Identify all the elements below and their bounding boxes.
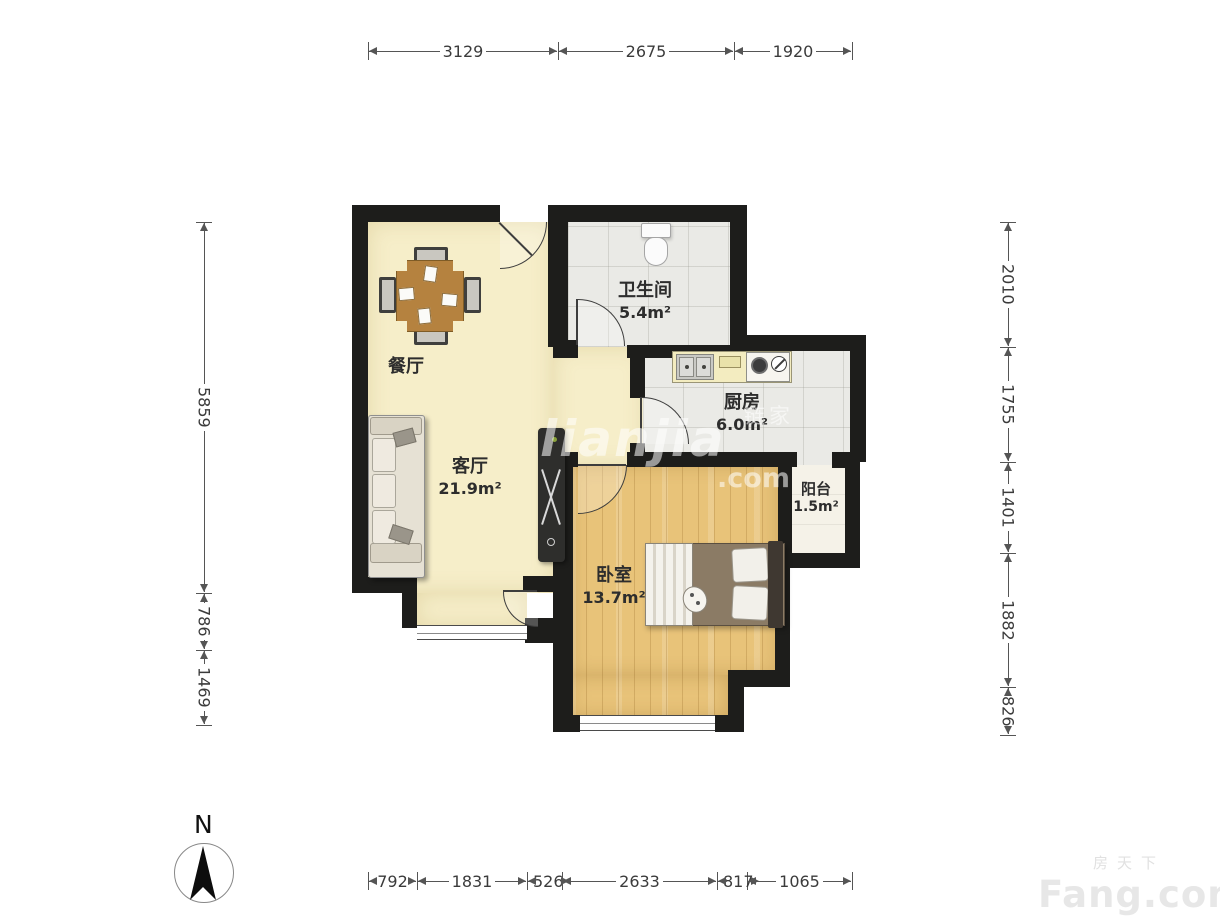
wall (850, 335, 866, 462)
dimension-bottom-5: 817 (718, 872, 746, 890)
wall (845, 452, 860, 568)
dimension-bottom-6: 1065 (748, 872, 851, 890)
dim-line (1008, 223, 1009, 261)
room-name: 卧室 (572, 565, 656, 588)
dim-line (563, 881, 616, 882)
bay-door-leaf (503, 590, 537, 592)
counter-vent (719, 356, 741, 368)
dim-line (1008, 463, 1009, 484)
dim-line (1008, 729, 1009, 734)
dimension-right-2: 1755 (999, 348, 1017, 461)
room-name: 客厅 (430, 456, 510, 479)
wall (548, 222, 568, 347)
dim-line (748, 881, 776, 882)
dimension-bottom-4: 2633 (563, 872, 716, 890)
room-area: 6.0m² (702, 415, 782, 435)
watermark-fang-cjk: 房天下 (1038, 852, 1220, 873)
bathroom-door-leaf (576, 299, 578, 345)
dimension-bottom-3: 526 (528, 872, 561, 890)
dim-value: 826 (999, 696, 1018, 727)
dimension-top-1: 3129 (369, 42, 557, 60)
dim-value: 2010 (999, 264, 1018, 305)
dimension-bottom-1: 792 (369, 872, 416, 890)
room-name: 卫生间 (600, 280, 690, 303)
dim-line (1008, 643, 1009, 686)
dim-line (1008, 554, 1009, 597)
dim-line (486, 51, 557, 52)
dim-tick (852, 872, 853, 890)
dim-line (369, 881, 374, 882)
place-setting (417, 307, 432, 324)
sofa-armrest (370, 543, 422, 563)
wall (630, 358, 645, 398)
kitchen-door-leaf (640, 397, 642, 443)
bed-decor-dot (690, 593, 694, 597)
dim-line (204, 431, 205, 592)
dim-line (816, 51, 851, 52)
room-label-balcony: 阳台 1.5m² (786, 480, 846, 516)
bed-headboard (768, 541, 783, 628)
dim-value: 786 (195, 606, 214, 637)
room-label-bedroom: 卧室 13.7m² (572, 565, 656, 608)
dim-value: 2633 (619, 872, 660, 891)
wall (730, 205, 747, 351)
sink-drain-dot (685, 365, 689, 369)
bed-pillow (731, 585, 769, 621)
bedroom-door-leaf (578, 464, 626, 466)
sofa-cushion (372, 474, 396, 508)
dimension-right-5: 826 (999, 688, 1017, 734)
room-area: 1.5m² (786, 499, 846, 517)
dim-line (1008, 428, 1009, 461)
wall (728, 670, 790, 687)
dim-line (204, 594, 205, 603)
dim-value: 1401 (999, 487, 1018, 528)
room-area: 5.4m² (600, 303, 690, 323)
dining-table-notch (396, 321, 407, 332)
dim-line (1008, 688, 1009, 693)
wall (548, 205, 747, 222)
dim-line (411, 881, 416, 882)
dim-value: 792 (377, 872, 408, 891)
dim-value: 1831 (452, 872, 493, 891)
dining-table-notch (396, 260, 407, 271)
dim-line (204, 640, 205, 649)
bed-decor-dot (696, 601, 700, 605)
dim-line (669, 51, 733, 52)
dim-line (418, 881, 449, 882)
dimension-left-1: 5859 (195, 223, 213, 592)
dimension-right-1: 2010 (999, 223, 1017, 346)
dim-line (369, 51, 440, 52)
room-area: 21.9m² (430, 479, 510, 499)
bed-pillow (731, 547, 769, 583)
room-label-dining: 餐厅 (376, 356, 436, 379)
dimension-bottom-2: 1831 (418, 872, 526, 890)
room-area: 13.7m² (572, 588, 656, 608)
place-setting (423, 265, 438, 283)
watermark-fang-brand: Fang.com (1038, 873, 1220, 916)
dining-chair-cushion (467, 280, 479, 310)
dim-line (718, 881, 720, 882)
toilet-bowl (644, 237, 668, 266)
floor-plan: 餐厅 客厅 21.9m² 卫生间 5.4m² 厨房 6.0m² 阳台 1.5m²… (0, 0, 1220, 924)
dimension-top-2: 2675 (559, 42, 733, 60)
wall (352, 205, 368, 593)
dim-value: 1469 (195, 667, 214, 708)
room-name: 阳台 (786, 480, 846, 499)
stove-burner (751, 357, 768, 374)
dim-value: 2675 (626, 42, 667, 61)
dim-tick (1000, 735, 1016, 736)
wall (553, 715, 580, 732)
dim-line (495, 881, 526, 882)
dim-line (663, 881, 716, 882)
dim-line (204, 651, 205, 664)
room-label-living: 客厅 21.9m² (430, 456, 510, 499)
dim-line (204, 711, 205, 724)
room-name: 餐厅 (376, 356, 436, 379)
room-label-kitchen: 厨房 6.0m² (702, 392, 782, 435)
dimension-right-3: 1401 (999, 463, 1017, 552)
room-label-bathroom: 卫生间 5.4m² (600, 280, 690, 323)
dim-line (1008, 308, 1009, 346)
dim-value: 1882 (999, 600, 1018, 641)
sofa-cushion (372, 438, 396, 472)
tv-antenna-dot (552, 437, 557, 442)
dim-line (528, 881, 530, 882)
wall (352, 205, 500, 222)
dim-value: 1920 (773, 42, 814, 61)
dimension-left-2: 786 (195, 594, 213, 649)
north-label: N (194, 810, 213, 839)
room-name: 厨房 (702, 392, 782, 415)
dim-line (735, 51, 770, 52)
dim-line (1008, 348, 1009, 381)
wall (715, 715, 744, 732)
dim-line (559, 51, 623, 52)
dim-line (823, 881, 851, 882)
wall (402, 592, 417, 628)
window (580, 715, 715, 731)
window (417, 625, 527, 640)
dining-table-notch (453, 260, 464, 271)
wall (730, 335, 866, 351)
dim-tick (852, 42, 853, 60)
dim-value: 3129 (443, 42, 484, 61)
dim-value: 1755 (999, 384, 1018, 425)
sink-drain-dot (702, 365, 706, 369)
dimension-left-3: 1469 (195, 651, 213, 724)
dim-value: 5859 (195, 387, 214, 428)
dining-chair-cushion (382, 280, 394, 310)
dim-line (204, 223, 205, 384)
dining-table-notch (453, 321, 464, 332)
watermark-fang: 房天下 Fang.com (1038, 852, 1220, 916)
wall (627, 452, 797, 467)
dim-tick (196, 725, 212, 726)
dim-value: 1065 (779, 872, 820, 891)
dimension-top-3: 1920 (735, 42, 851, 60)
toilet-tank (641, 223, 671, 238)
place-setting (398, 287, 415, 301)
floor-bedroom-lower (570, 675, 728, 717)
tv-dot (547, 538, 555, 546)
dim-line (1008, 531, 1009, 552)
dimension-right-4: 1882 (999, 554, 1017, 686)
wall (553, 340, 578, 358)
dim-value: 526 (533, 872, 564, 891)
place-setting (441, 293, 458, 307)
